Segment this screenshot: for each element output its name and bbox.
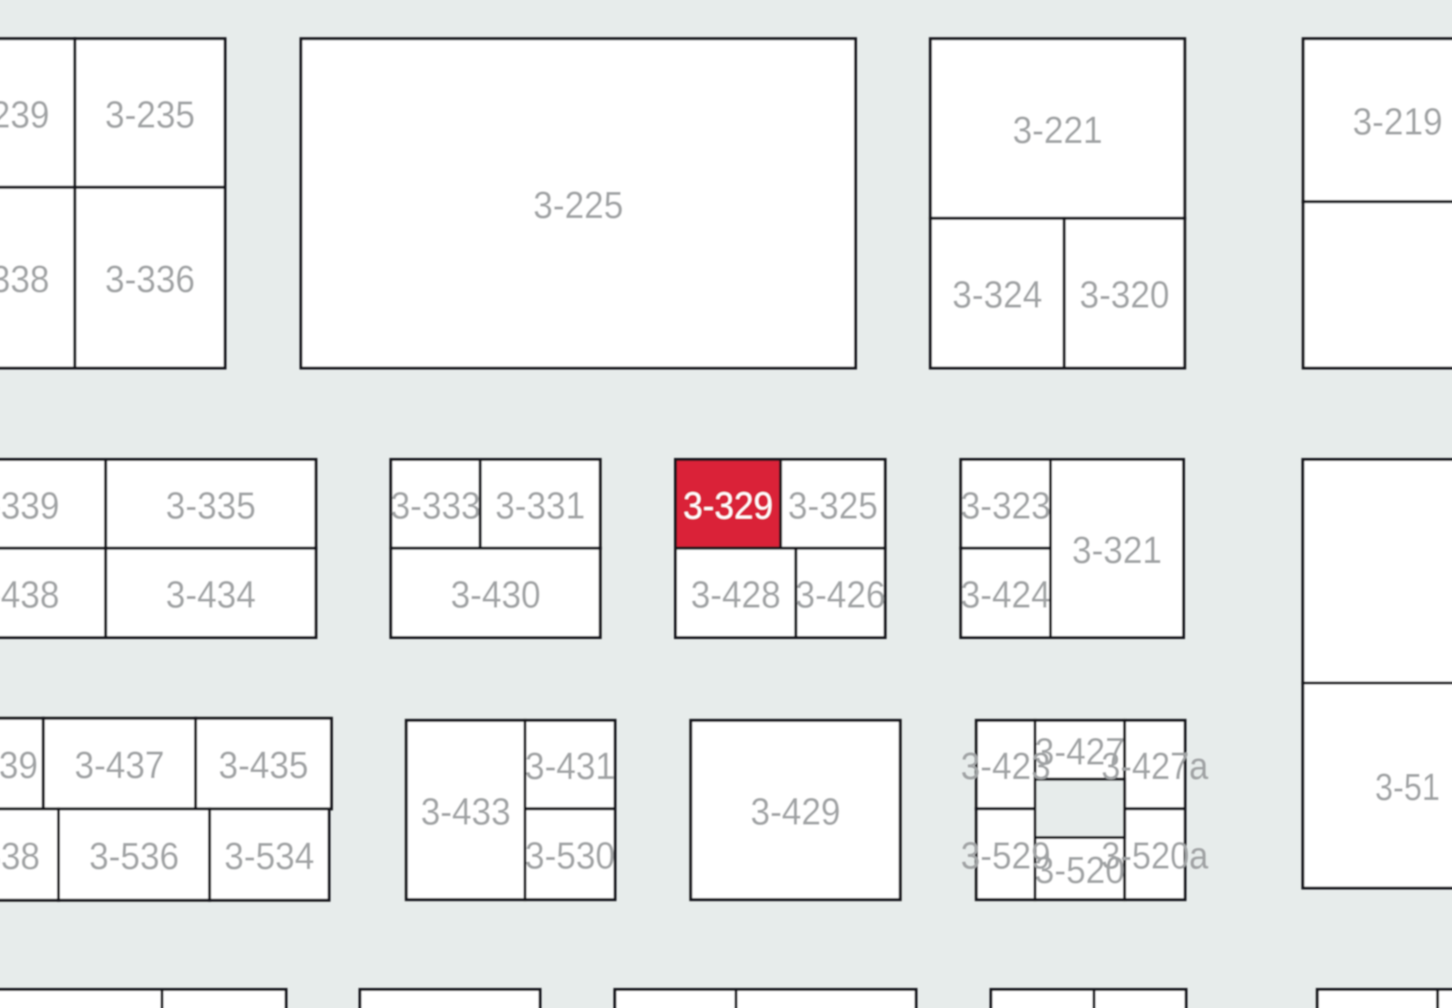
- svg-text:3-331: 3-331: [495, 485, 585, 527]
- svg-text:3-520a: 3-520a: [1101, 836, 1209, 878]
- svg-text:3-323: 3-323: [961, 485, 1051, 527]
- svg-text:3-427a: 3-427a: [1101, 746, 1209, 788]
- svg-text:3-536: 3-536: [89, 836, 179, 878]
- svg-text:3-338: 3-338: [0, 259, 50, 301]
- svg-text:3-336: 3-336: [105, 259, 195, 301]
- svg-text:3-538: 3-538: [0, 836, 40, 878]
- svg-text:3-430: 3-430: [451, 574, 541, 616]
- svg-text:3-433: 3-433: [421, 792, 511, 834]
- svg-text:3-329: 3-329: [683, 485, 773, 527]
- svg-text:3-221: 3-221: [1013, 110, 1103, 152]
- svg-text:3-335: 3-335: [166, 485, 256, 527]
- svg-text:3-530: 3-530: [525, 836, 615, 878]
- svg-text:3-235: 3-235: [105, 95, 195, 137]
- svg-text:3-225: 3-225: [533, 185, 623, 227]
- svg-text:3-431: 3-431: [525, 746, 615, 788]
- svg-text:3-324: 3-324: [952, 275, 1042, 317]
- svg-text:3-320: 3-320: [1080, 275, 1170, 317]
- svg-text:3-438: 3-438: [0, 574, 59, 616]
- svg-text:3-426: 3-426: [796, 574, 886, 616]
- svg-text:3-333: 3-333: [391, 485, 481, 527]
- svg-text:3-325: 3-325: [788, 485, 878, 527]
- svg-text:3-424: 3-424: [961, 574, 1051, 616]
- svg-text:3-339: 3-339: [0, 485, 59, 527]
- svg-text:3-239: 3-239: [0, 95, 50, 137]
- svg-text:3-534: 3-534: [224, 836, 314, 878]
- svg-text:3-219: 3-219: [1353, 102, 1443, 144]
- svg-text:3-429: 3-429: [751, 792, 841, 834]
- svg-text:3-439: 3-439: [0, 745, 38, 787]
- svg-text:3-435: 3-435: [219, 745, 309, 787]
- svg-text:3-321: 3-321: [1072, 530, 1162, 572]
- svg-text:3-437: 3-437: [75, 745, 165, 787]
- svg-text:3-51: 3-51: [1375, 767, 1440, 809]
- svg-text:3-428: 3-428: [691, 574, 781, 616]
- svg-text:3-434: 3-434: [166, 574, 256, 616]
